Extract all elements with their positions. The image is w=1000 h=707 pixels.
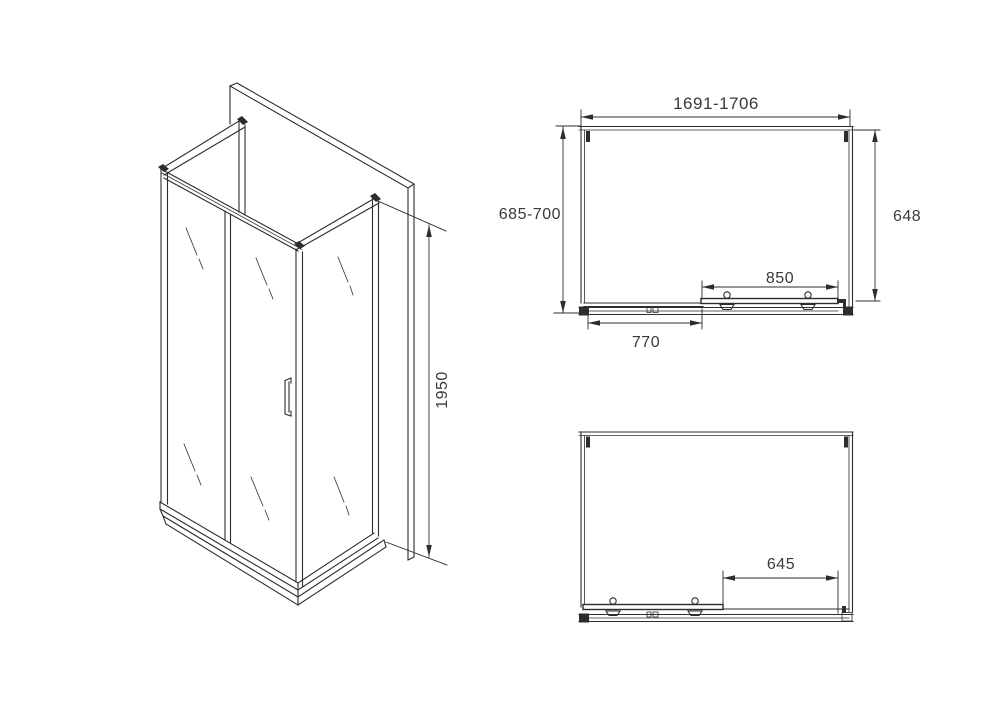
dimension-door-width: 850: [702, 270, 838, 299]
right-side-panel: [296, 193, 381, 536]
wall-profile-left: [586, 131, 590, 142]
iso-view: 1950: [158, 83, 451, 605]
wall-profile-right: [844, 437, 848, 448]
back-right-post-cap: [370, 193, 381, 202]
plan-view-door-open: 645: [579, 432, 853, 623]
front-sliding-door-wall: [161, 169, 305, 586]
technical-drawing-page: 1950: [0, 0, 1000, 707]
sliding-door-section: [701, 299, 838, 304]
door-end-bracket: [842, 606, 846, 613]
arrow-left-icon: [581, 114, 593, 120]
front-track-assembly: [579, 292, 853, 316]
enclosure-outline: [579, 127, 853, 308]
dimension-label-fixed-panel: 770: [632, 334, 660, 351]
door-latch-detail: [647, 308, 658, 313]
wall-profile-left: [586, 437, 590, 448]
arrow-left-icon: [723, 575, 735, 581]
arrow-left-icon: [588, 320, 600, 326]
wall-panel: [230, 83, 414, 560]
front-track-assembly: [579, 598, 853, 623]
arrow-up-icon: [426, 225, 432, 237]
dimension-label-width: 1691-1706: [673, 94, 759, 113]
arrow-up-icon: [560, 127, 566, 139]
sliding-door-section: [583, 605, 723, 610]
plan-view-door-closed: 1691-1706 685-700 648 850: [499, 94, 921, 351]
sill-end-bracket-right: [842, 613, 852, 622]
door-handle[interactable]: [285, 378, 291, 416]
dimension-left-depth: 685-700: [499, 126, 581, 313]
arrow-right-icon: [690, 320, 702, 326]
dimension-label-open-passage: 645: [767, 556, 795, 573]
wall-profile-right: [844, 131, 848, 142]
shower-tray: [160, 502, 386, 605]
sill-end-cap-left: [579, 614, 589, 623]
dimension-fixed-panel: 770: [588, 309, 702, 351]
door-end-bracket: [837, 299, 846, 303]
dimension-label-right-depth: 648: [893, 208, 921, 225]
sill-end-cap-right: [843, 307, 853, 316]
dimension-label-left-depth: 685-700: [499, 206, 561, 223]
arrow-right-icon: [838, 114, 850, 120]
dimension-label-height: 1950: [434, 371, 451, 409]
arrow-down-icon: [872, 289, 878, 301]
dimension-open-passage: 645: [723, 556, 838, 613]
glass-streak: [184, 228, 203, 485]
enclosure-outline: [579, 432, 853, 612]
technical-drawing-canvas: 1950: [0, 0, 1000, 707]
arrow-down-icon: [560, 301, 566, 313]
dimension-width: 1691-1706: [581, 94, 850, 126]
arrow-right-icon: [826, 284, 838, 290]
glass-streak: [251, 258, 273, 520]
arrow-left-icon: [702, 284, 714, 290]
dimension-right-depth: 648: [854, 130, 921, 301]
glass-streak: [334, 257, 353, 515]
arrow-down-icon: [426, 545, 432, 557]
arrow-right-icon: [826, 575, 838, 581]
sill-end-cap-left: [579, 307, 589, 316]
arrow-up-icon: [872, 130, 878, 142]
dimension-label-door-width: 850: [766, 270, 794, 287]
